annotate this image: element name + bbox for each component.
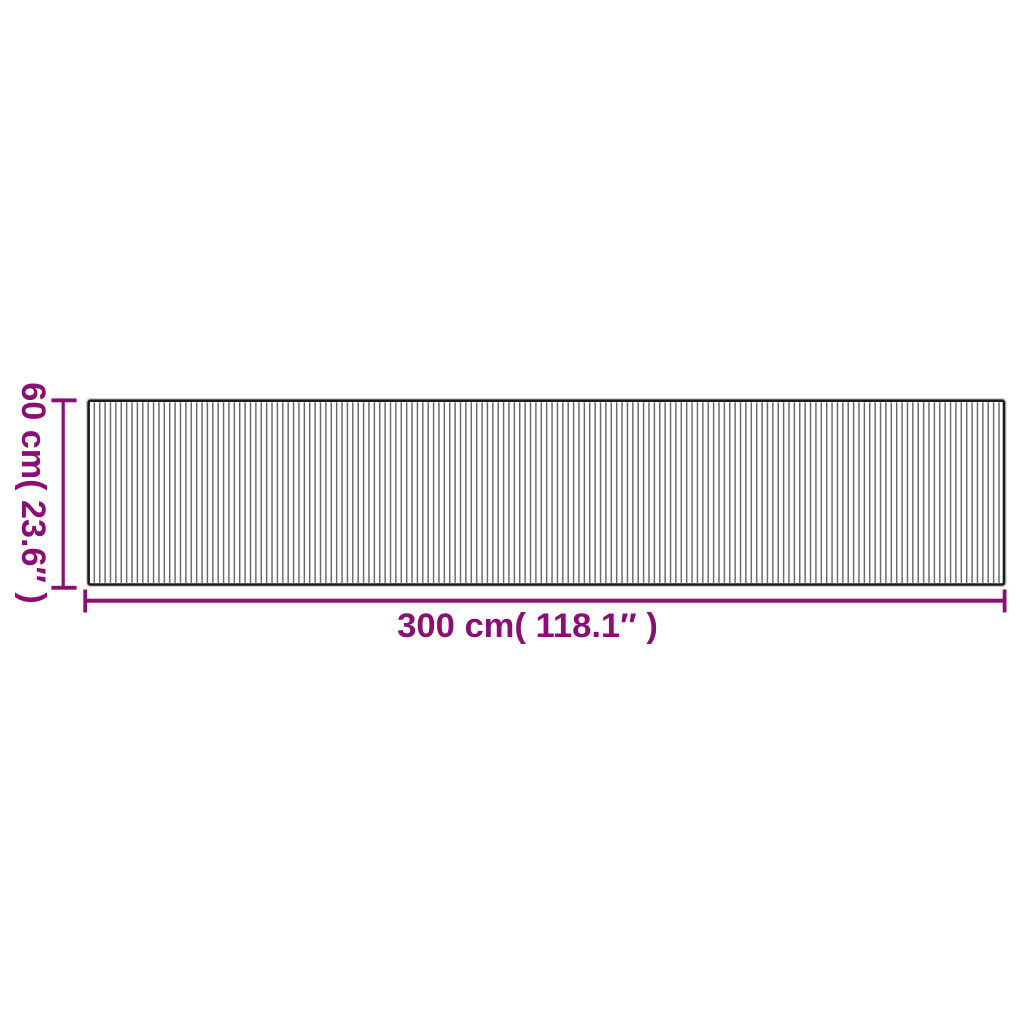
svg-text:60 cm( 23.6″ ): 60 cm( 23.6″ ) <box>14 382 52 604</box>
svg-text:300 cm( 118.1″ ): 300 cm( 118.1″ ) <box>397 607 658 645</box>
